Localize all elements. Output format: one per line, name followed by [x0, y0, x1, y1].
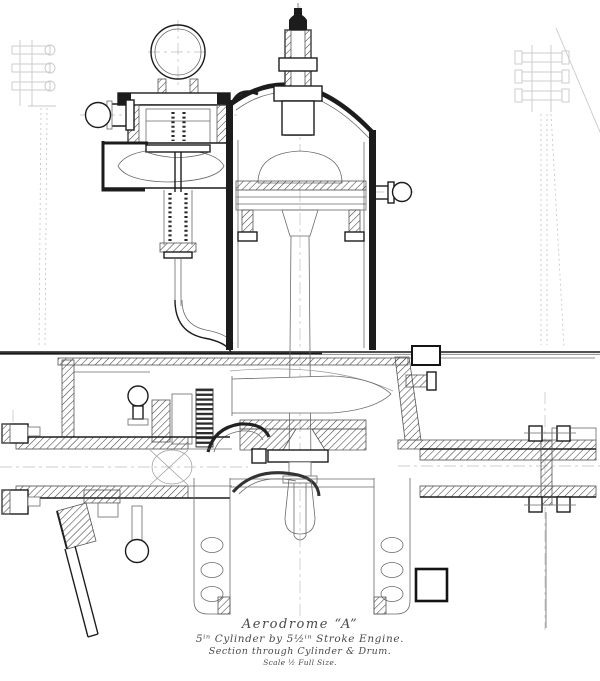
- valve-chest-assembly: [118, 25, 258, 147]
- engine-cross-section-drawing: [0, 0, 600, 681]
- intake-valve-and-spring: [103, 141, 233, 352]
- support-legs: [194, 478, 447, 614]
- drawing-section-note: Section through Cylinder & Drum.: [0, 646, 600, 658]
- drawing-title: Aerodrome “A”: [0, 617, 600, 633]
- sheet-fold-line: [0, 352, 600, 354]
- drawing-subtitle: 5ⁱⁿ Cylinder by 5½ⁱⁿ Stroke Engine.: [0, 633, 600, 646]
- ghost-bolt-stack-left: [12, 40, 56, 348]
- caption-block: Aerodrome “A” 5ⁱⁿ Cylinder by 5½ⁱⁿ Strok…: [0, 617, 600, 668]
- ghost-bolt-stack-right: [515, 28, 600, 348]
- right-ball-fitting: [376, 182, 412, 203]
- valve-cap: [289, 14, 307, 30]
- mount-box: [416, 569, 447, 601]
- crank-handle-assembly: [57, 490, 149, 637]
- drawing-sheet: Aerodrome “A” 5ⁱⁿ Cylinder by 5½ⁱⁿ Strok…: [0, 0, 600, 681]
- drawing-scale-note: Scale ½ Full Size.: [0, 658, 600, 667]
- ball-end-pipe: [86, 100, 135, 130]
